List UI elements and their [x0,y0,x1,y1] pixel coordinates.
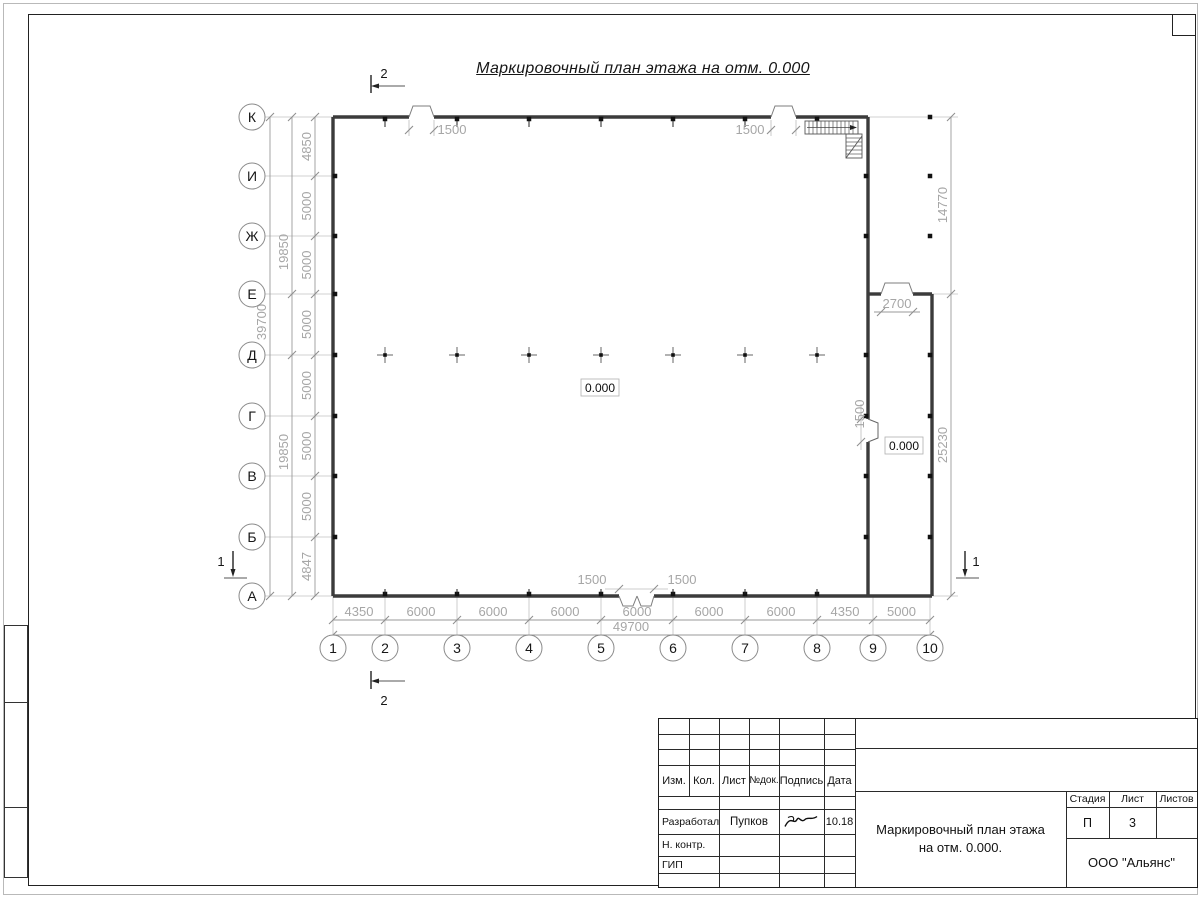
column-mark [928,234,933,239]
tb-sheets-value [1156,807,1197,838]
axis-label: И [247,168,257,184]
tb-doc-title-line1: Маркировочный план этажа [876,821,1045,839]
tb-grid-line [659,856,855,857]
dim-label: 25230 [935,427,950,463]
tb-header-podpis: Подпись [779,765,824,796]
column-mark [333,474,338,479]
tb-company: ООО "Альянс" [1066,838,1197,887]
column-mark [333,174,338,179]
tb-header-kol: Кол. [689,765,719,796]
dim-label: 5000 [887,604,916,619]
dim-label: 6000 [407,604,436,619]
column-mark [527,117,532,122]
dim-label: 49700 [613,619,649,634]
dim-label: 19850 [276,234,291,270]
tb-role-ncontrol: Н. контр. [659,834,719,856]
tb-grid-line [855,719,856,887]
axis-label: В [247,468,256,484]
column-mark [815,353,819,357]
axis-label: Е [247,286,256,302]
column-mark [333,234,338,239]
door-symbol [409,106,434,117]
tb-grid-line [659,749,855,750]
tb-name-developer: Пупков [719,809,779,834]
dim-label: 4350 [831,604,860,619]
dim-label: 4350 [345,604,374,619]
drawing-sheet: Маркировочный план этажа на отм. 0.000 4… [0,0,1200,900]
axis-label: Б [247,529,256,545]
axis-label: К [248,109,257,125]
column-mark [383,353,387,357]
tb-grid-line [855,748,1197,749]
tb-header-data: Дата [824,765,855,796]
stair-arrow [850,125,857,130]
tb-header-list: Лист [719,765,749,796]
column-mark [383,117,388,122]
tb-grid-line [719,719,720,887]
dim-label: 6000 [767,604,796,619]
opening-dim: 1500 [438,122,467,137]
axis-label: 8 [813,640,821,656]
section-number: 2 [380,693,387,708]
column-mark [527,353,531,357]
tb-header-izm: Изм. [659,765,689,796]
axis-label: 6 [669,640,677,656]
opening-dim: 1500 [736,122,765,137]
tb-grid-line [689,719,690,796]
dim-label: 5000 [299,192,314,221]
tb-grid-line [659,834,855,835]
tb-stage-label: Стадия [1066,791,1109,807]
door-symbol [881,283,913,294]
dim-label: 6000 [695,604,724,619]
axis-label: А [247,588,257,604]
elevation-value: 0.000 [585,381,615,395]
tb-grid-line [749,719,750,796]
section-number: 1 [217,554,224,569]
elevation-value: 0.000 [889,439,919,453]
section-arrow [371,679,379,684]
column-mark [333,414,338,419]
opening-dim: 1500 [852,400,867,429]
tb-sheet-value: 3 [1109,807,1156,838]
opening-dim: 1500 [668,572,697,587]
tb-grid-line [1066,807,1197,808]
dim-label: 6000 [551,604,580,619]
column-mark [333,353,338,358]
tb-role-developer: Разработал [659,809,719,834]
stair-break-line [846,136,862,158]
tb-stage-value: П [1066,807,1109,838]
tb-grid-line [1109,791,1110,838]
tb-role-gip: ГИП [659,856,719,873]
column-mark [599,117,604,122]
tb-sheet-label: Лист [1109,791,1156,807]
dim-label: 4850 [299,132,314,161]
tb-grid-line [824,719,825,887]
axis-label: 9 [869,640,877,656]
column-mark [928,414,933,419]
column-mark [333,292,338,297]
tb-header-ndok: №док. [749,765,779,796]
section-arrow [371,84,379,89]
column-mark [333,535,338,540]
tb-grid-line [855,791,1197,792]
column-mark [928,115,933,120]
dim-label: 39700 [254,304,269,340]
signature-scribble [781,811,821,832]
tb-grid-line [659,809,855,810]
column-mark [743,353,747,357]
tb-grid-line [779,719,780,887]
column-mark [671,117,676,122]
column-mark [743,117,748,122]
dim-label: 4847 [299,552,314,581]
column-mark [455,353,459,357]
axis-label: 3 [453,640,461,656]
column-mark [864,353,869,358]
axis-label: 10 [922,640,938,656]
axis-label: 7 [741,640,749,656]
dim-label: 5000 [299,251,314,280]
column-mark [455,117,460,122]
column-mark [671,353,675,357]
door-symbol [868,419,878,442]
title-block: Изм. Кол. Лист №док. Подпись Дата Разраб… [658,718,1198,888]
axis-label: Г [248,408,256,424]
tb-grid-line [659,734,855,735]
dim-label: 14770 [935,187,950,223]
tb-grid-line [1066,838,1197,839]
column-mark [864,535,869,540]
axis-label: 4 [525,640,533,656]
axis-label: 2 [381,640,389,656]
tb-grid-line [659,765,855,766]
dim-label: 5000 [299,432,314,461]
column-mark [864,474,869,479]
opening-dim: 1500 [578,572,607,587]
dim-label: 5000 [299,371,314,400]
tb-grid-line [1156,791,1157,838]
tb-date-developer: 10.18 [824,809,855,834]
column-mark [864,234,869,239]
section-arrow [963,569,968,577]
column-mark [928,353,933,358]
tb-sheets-label: Листов [1156,791,1197,807]
tb-grid-line [659,873,855,874]
dim-label: 5000 [299,492,314,521]
door-symbol [771,106,796,117]
column-mark [928,474,933,479]
tb-grid-line [1066,791,1067,887]
dim-label: 5000 [299,310,314,339]
section-arrow [231,569,236,577]
dim-label: 6000 [479,604,508,619]
axis-label: Д [247,347,257,363]
tb-grid-line [659,796,855,797]
section-number: 1 [972,554,979,569]
axis-label: Ж [246,228,259,244]
column-mark [928,535,933,540]
section-number: 2 [380,66,387,81]
opening-dim: 2700 [883,296,912,311]
column-mark [864,174,869,179]
axis-label: 1 [329,640,337,656]
dim-label: 19850 [276,434,291,470]
axis-label: 5 [597,640,605,656]
tb-doc-title-line2: на отм. 0.000. [919,839,1002,857]
tb-doc-title: Маркировочный план этажа на отм. 0.000. [855,791,1066,887]
column-mark [928,174,933,179]
column-mark [599,353,603,357]
